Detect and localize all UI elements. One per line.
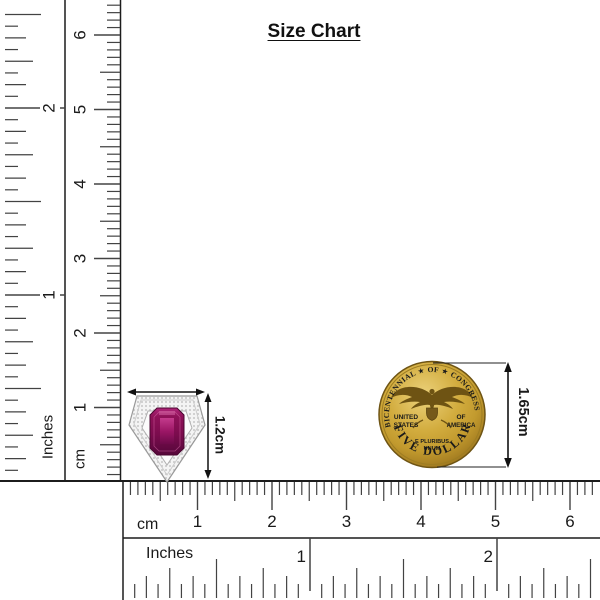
pendant-width-dimension bbox=[127, 389, 205, 396]
svg-text:STATES: STATES bbox=[394, 422, 419, 429]
pendant-height-value: 1.2cm bbox=[213, 416, 228, 454]
coin-height-value: 1.65cm bbox=[515, 387, 531, 436]
size-chart-image: Size Chart Inches cm cm Inches 121234561… bbox=[0, 0, 600, 600]
pendant-height-dimension: 1.2cm bbox=[205, 393, 228, 479]
products: 1.2cm BICENTENNIAL ★ OF ★ CONGRESS FIVE … bbox=[0, 0, 600, 600]
svg-text:E PLURIBUS: E PLURIBUS bbox=[415, 439, 449, 445]
earring-pendant bbox=[129, 396, 205, 482]
svg-text:OF: OF bbox=[456, 414, 465, 421]
svg-text:UNITED: UNITED bbox=[394, 414, 419, 421]
svg-text:UNUM: UNUM bbox=[424, 446, 441, 452]
coin: BICENTENNIAL ★ OF ★ CONGRESS FIVE DOLLAR… bbox=[0, 0, 485, 468]
svg-text:AMERICA: AMERICA bbox=[447, 422, 476, 429]
gemstone bbox=[150, 408, 184, 455]
